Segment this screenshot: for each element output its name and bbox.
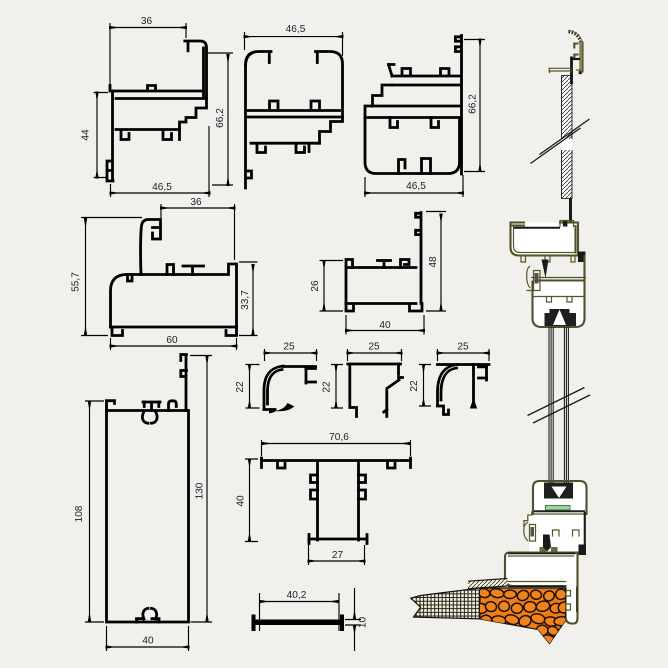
svg-text:70,6: 70,6 (329, 432, 349, 443)
svg-text:40,2: 40,2 (287, 590, 307, 601)
svg-text:25: 25 (283, 342, 295, 353)
svg-text:46,5: 46,5 (152, 182, 172, 193)
svg-text:48: 48 (428, 256, 439, 268)
svg-text:22: 22 (409, 380, 420, 392)
svg-text:108: 108 (74, 505, 85, 522)
svg-text:26: 26 (310, 280, 321, 292)
svg-text:22: 22 (322, 381, 333, 393)
svg-text:27: 27 (332, 550, 344, 561)
svg-text:60: 60 (166, 335, 178, 346)
svg-text:66,2: 66,2 (468, 94, 479, 114)
svg-text:40: 40 (379, 320, 391, 331)
svg-text:40: 40 (142, 636, 154, 647)
svg-text:130: 130 (195, 482, 206, 499)
svg-text:46,5: 46,5 (286, 24, 306, 35)
svg-text:33,7: 33,7 (240, 290, 251, 310)
svg-text:55,7: 55,7 (71, 272, 82, 292)
svg-text:25: 25 (457, 342, 469, 353)
svg-text:10: 10 (358, 617, 369, 629)
svg-text:36: 36 (190, 197, 202, 208)
svg-text:44: 44 (81, 129, 92, 141)
svg-text:22: 22 (235, 381, 246, 393)
svg-text:66,2: 66,2 (215, 108, 226, 128)
svg-text:25: 25 (368, 342, 380, 353)
svg-text:40: 40 (236, 495, 247, 507)
svg-text:36: 36 (141, 16, 153, 27)
svg-text:46,5: 46,5 (406, 181, 426, 192)
